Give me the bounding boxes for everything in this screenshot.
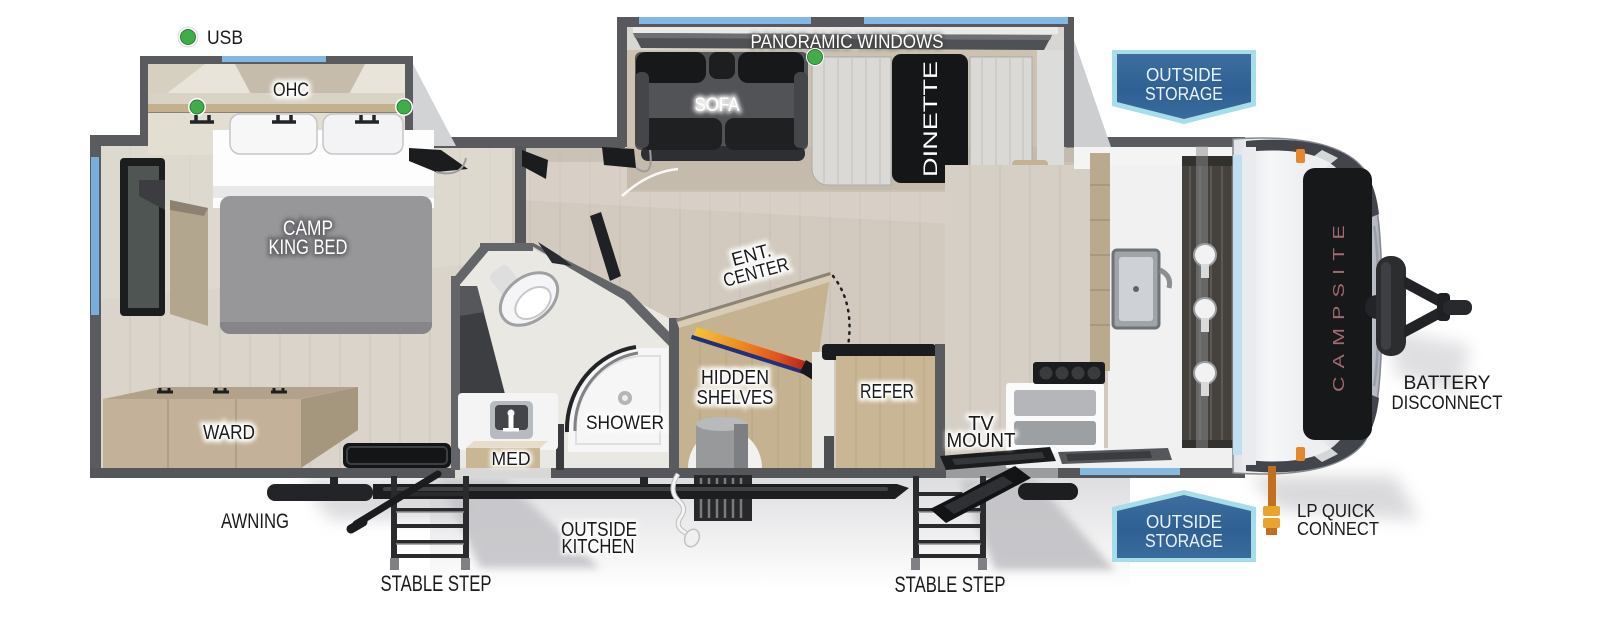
svg-text:USB: USB [207, 28, 243, 49]
svg-text:SHELVES: SHELVES [697, 387, 774, 409]
svg-text:KING BED: KING BED [269, 236, 348, 259]
svg-text:WARD: WARD [203, 422, 255, 444]
svg-text:DISCONNECT: DISCONNECT [1392, 393, 1503, 414]
svg-text:OUTSIDE: OUTSIDE [1146, 512, 1222, 532]
svg-text:STABLE STEP: STABLE STEP [895, 572, 1006, 597]
svg-text:DINETTE: DINETTE [921, 61, 942, 177]
svg-text:SOFA: SOFA [695, 95, 740, 116]
svg-text:LP QUICK: LP QUICK [1297, 501, 1375, 521]
svg-text:CONNECT: CONNECT [1297, 519, 1379, 539]
svg-text:CAMPSITE: CAMPSITE [1331, 217, 1348, 392]
svg-text:MOUNT: MOUNT [947, 430, 1016, 452]
svg-text:HIDDEN: HIDDEN [701, 367, 769, 389]
svg-text:KITCHEN: KITCHEN [562, 536, 635, 558]
svg-text:STORAGE: STORAGE [1145, 84, 1223, 104]
svg-text:BATTERY: BATTERY [1404, 373, 1491, 394]
svg-text:OHC: OHC [273, 80, 309, 101]
svg-text:STABLE STEP: STABLE STEP [381, 571, 492, 596]
svg-text:OUTSIDE: OUTSIDE [1146, 65, 1222, 85]
svg-text:AWNING: AWNING [221, 510, 289, 533]
svg-text:PANORAMIC WINDOWS: PANORAMIC WINDOWS [751, 32, 944, 53]
svg-text:STORAGE: STORAGE [1145, 531, 1223, 551]
svg-text:SHOWER: SHOWER [586, 413, 664, 434]
svg-text:MED: MED [492, 449, 531, 469]
svg-text:REFER: REFER [860, 381, 914, 403]
